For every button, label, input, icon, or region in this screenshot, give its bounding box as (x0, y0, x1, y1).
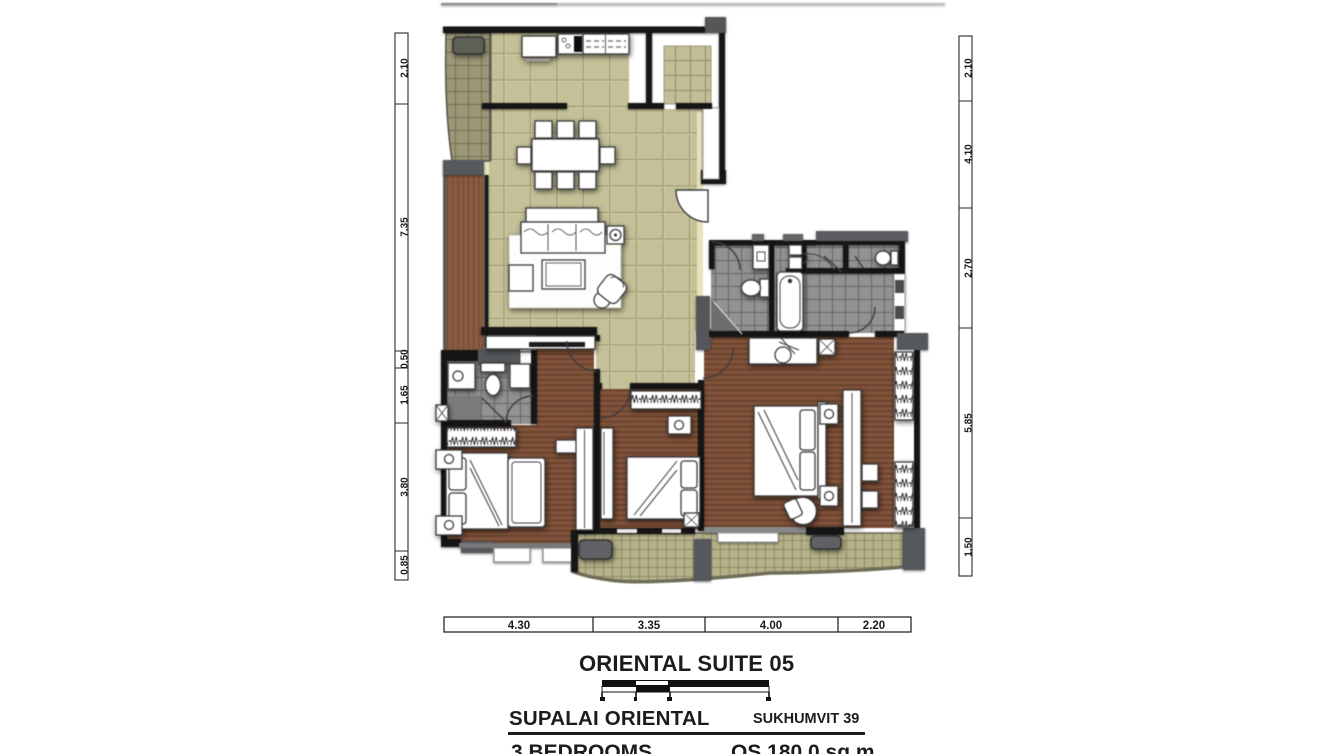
svg-text:3.35: 3.35 (638, 620, 661, 632)
svg-text:1.50: 1.50 (964, 537, 975, 557)
svg-text:0.50: 0.50 (400, 349, 411, 369)
svg-text:4.00: 4.00 (760, 620, 782, 632)
svg-text:2.20: 2.20 (863, 620, 885, 632)
svg-text:4.30: 4.30 (508, 620, 530, 632)
svg-text:1.65: 1.65 (400, 385, 411, 405)
svg-text:7.35: 7.35 (400, 217, 411, 237)
svg-text:5.85: 5.85 (964, 413, 975, 433)
svg-text:4.10: 4.10 (964, 144, 975, 164)
svg-text:2.70: 2.70 (964, 258, 975, 278)
svg-text:2.10: 2.10 (400, 58, 411, 78)
svg-text:0.85: 0.85 (400, 555, 411, 575)
svg-text:3.80: 3.80 (400, 477, 411, 497)
svg-text:2.10: 2.10 (964, 58, 975, 78)
